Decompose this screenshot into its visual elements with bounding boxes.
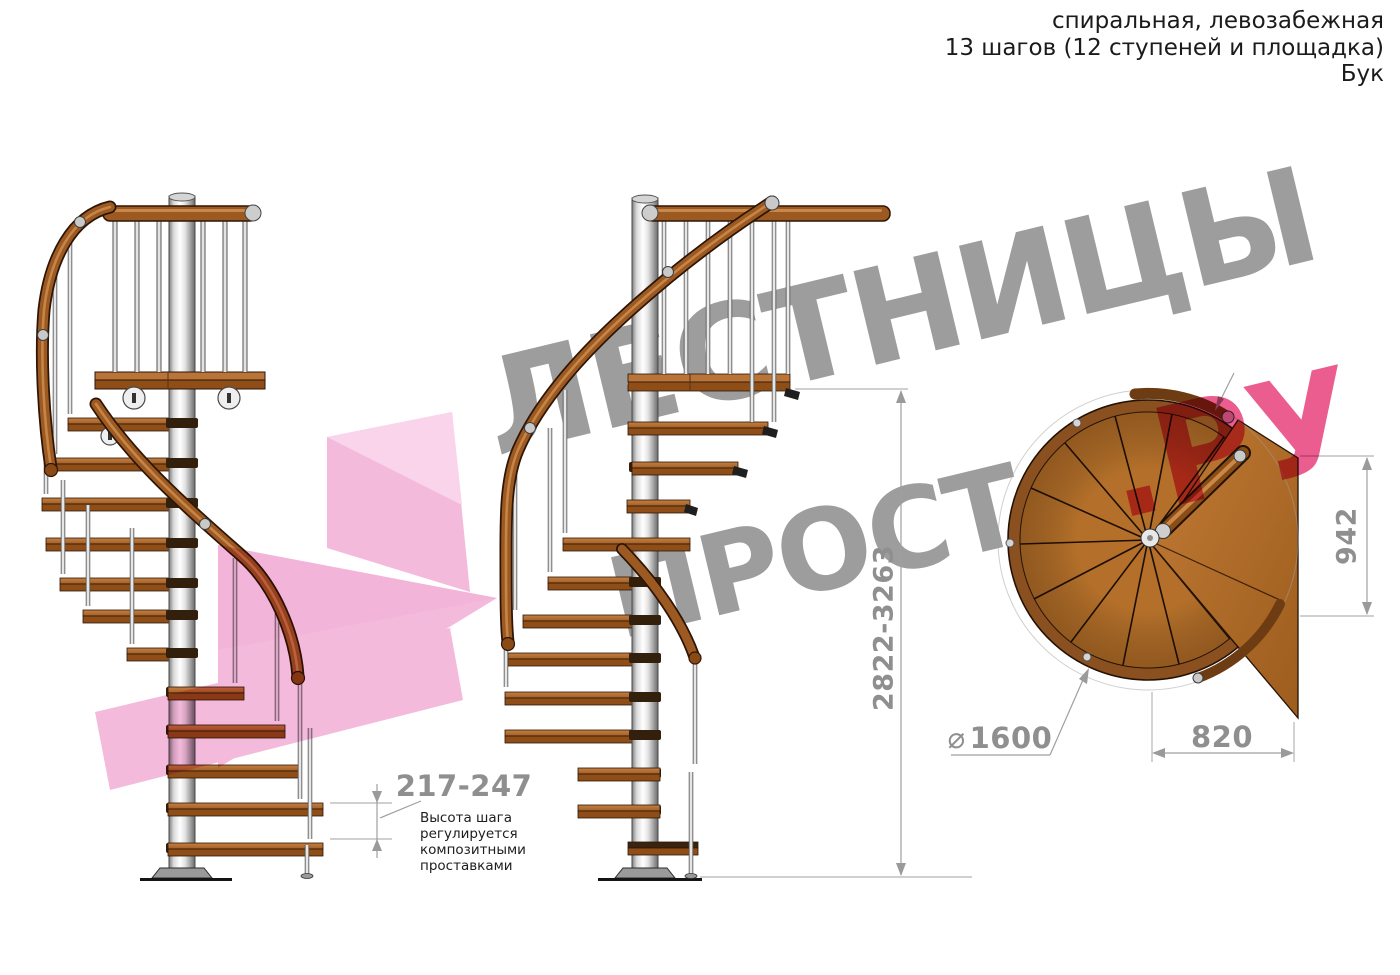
drawing-canvas: ЛЕСТНИЦЫ ПРОСТО.РУ (0, 0, 1400, 975)
total-height-label: 2822-3263 (869, 545, 900, 711)
landing-height-label: 942 (1332, 507, 1363, 565)
landing-width-label: 820 (1191, 720, 1253, 754)
stair-steps: 13 шагов (12 ступеней и площадка) (945, 35, 1384, 62)
step-height-note: Высота шага регулируется композитными пр… (420, 810, 526, 874)
diameter-label: ⌀1600 (948, 721, 1053, 755)
stair-material: Бук (945, 61, 1384, 88)
title-block: спиральная, левозабежная 13 шагов (12 ст… (945, 8, 1384, 88)
step-height-label: 217-247 (396, 769, 533, 803)
stair-type: спиральная, левозабежная (945, 8, 1384, 35)
diameter-icon: ⌀ (948, 721, 966, 755)
